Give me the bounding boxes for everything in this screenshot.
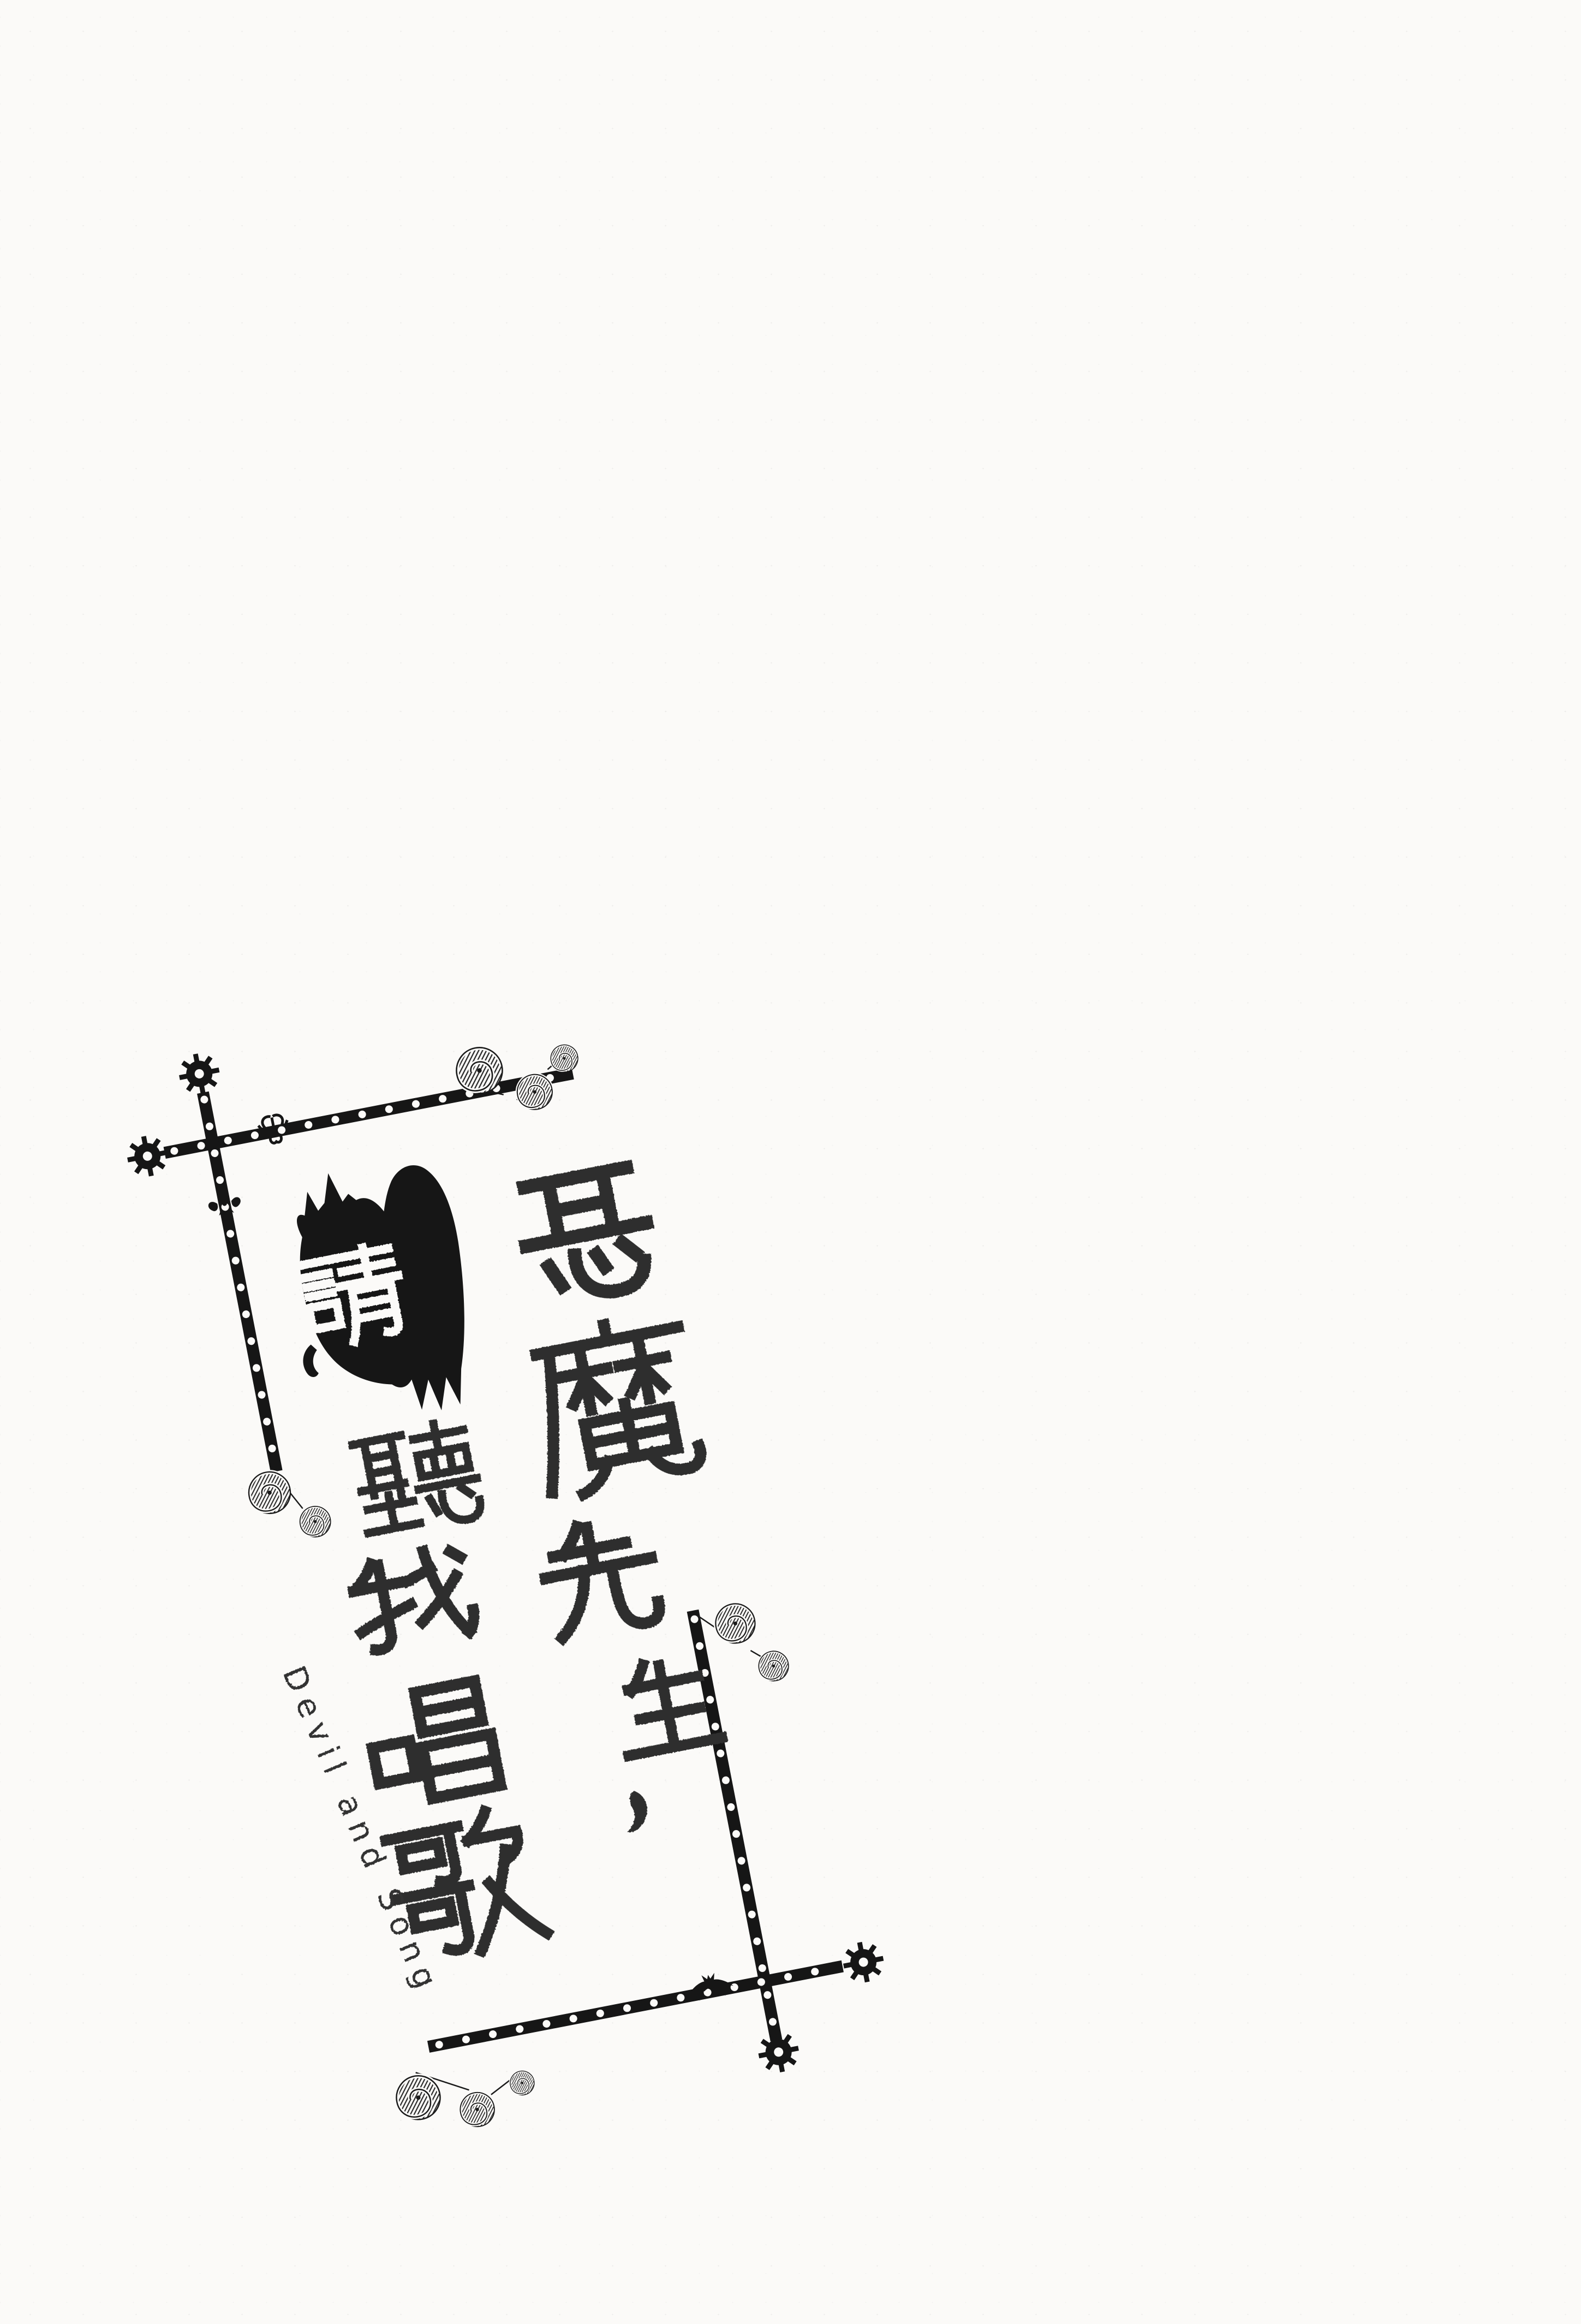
title-glyphs: 惡 魔 先 生 ， (269, 1164, 787, 1964)
scroll-icon (756, 1649, 791, 1684)
scroll-cluster-left-end (245, 1462, 333, 1548)
frame-top-bar (164, 1068, 574, 1159)
glyph-wo: 我 (349, 1544, 478, 1653)
gear-icon (124, 1133, 171, 1180)
glyph-ting: 聽 (350, 1417, 484, 1538)
title-frame-group: 惡 魔 先 生 ， (110, 958, 901, 2161)
scroll-icon (508, 2069, 536, 2097)
scroll-cluster-bottom-left (392, 2051, 540, 2141)
gear-icon (840, 1939, 887, 1986)
glyph-xian: 先 (537, 1514, 663, 1640)
glyph-chang: 唱 (363, 1680, 500, 1808)
gear-icon (176, 1050, 223, 1098)
ornamental-frame (110, 958, 901, 2161)
glyph-mo: 魔 (523, 1311, 706, 1500)
scanned-title-page: 惡魔先生，請聽我唱歌 Devil and Song 惡魔先生，請聽我唱歌 (0, 0, 1581, 2324)
frame-rivet-dots (166, 1014, 844, 2114)
scroll-icon (297, 1504, 333, 1540)
devil-wing-icon (269, 1152, 490, 1435)
glyph-comma: ， (620, 1789, 652, 1833)
scroll-icon (548, 1042, 580, 1074)
title-artwork: 惡魔先生，請聽我唱歌 (0, 0, 1581, 2324)
scroll-icon (457, 2089, 497, 2129)
scroll-icon (712, 1600, 758, 1646)
scroll-icon (245, 1468, 294, 1517)
glyph-e: 惡 (515, 1166, 658, 1306)
frame-left-bar (197, 1092, 282, 1473)
